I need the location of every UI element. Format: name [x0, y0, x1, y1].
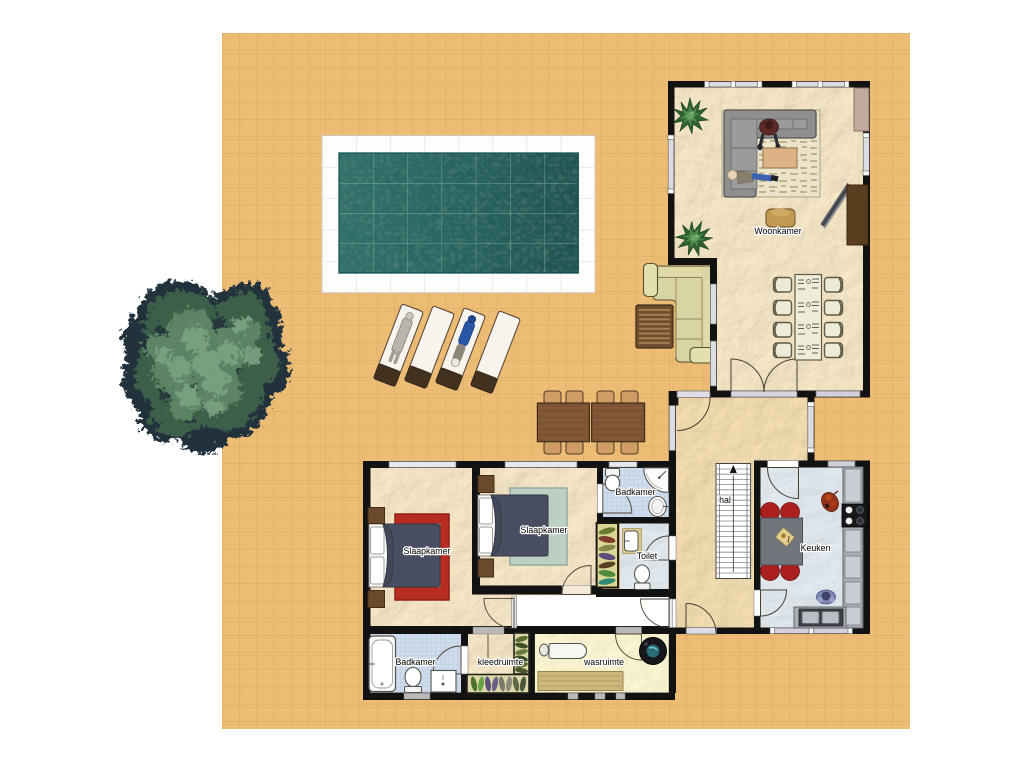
svg-text:Keuken: Keuken	[801, 543, 831, 553]
svg-text:Woonkamer: Woonkamer	[754, 226, 801, 236]
svg-text:wasruimte: wasruimte	[583, 657, 624, 667]
svg-text:Slaapkamer: Slaapkamer	[521, 525, 568, 535]
svg-text:Toilet: Toilet	[637, 551, 658, 561]
svg-text:hal: hal	[719, 495, 731, 505]
svg-text:Slaapkamer: Slaapkamer	[404, 546, 451, 556]
svg-text:kleedruimte: kleedruimte	[478, 657, 524, 667]
svg-text:Badkamer: Badkamer	[395, 657, 435, 667]
svg-text:Badkamer: Badkamer	[615, 487, 655, 497]
